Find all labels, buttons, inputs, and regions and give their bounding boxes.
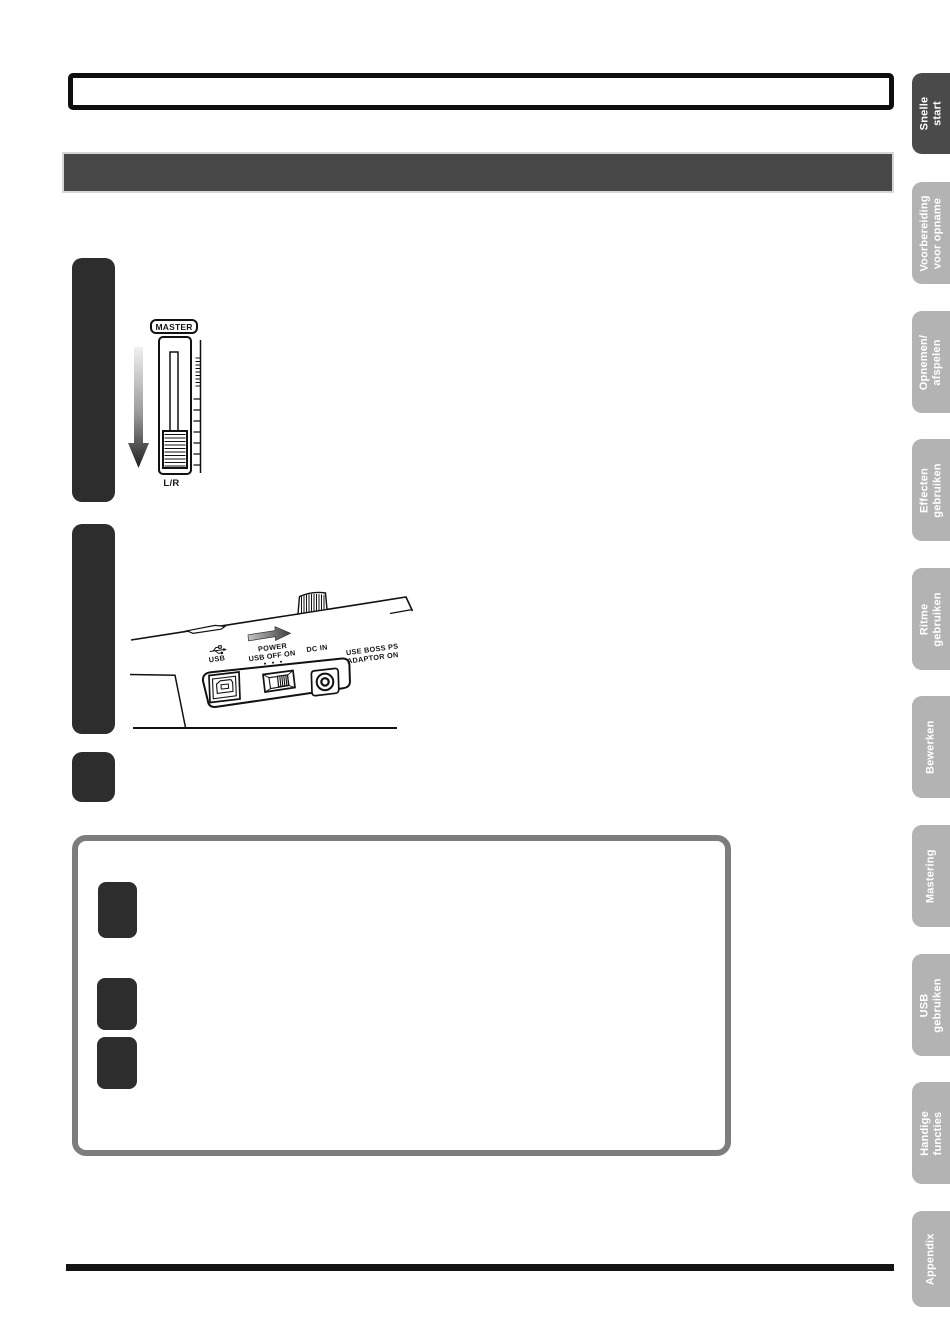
usb-label: USB — [208, 653, 226, 664]
down-arrow-icon — [128, 347, 149, 468]
tab-label: Bewerken — [925, 720, 938, 774]
sidebar-tab-appendix[interactable]: Appendix — [912, 1211, 950, 1307]
sidebar-tab-usb[interactable]: USB gebruiken — [912, 954, 950, 1056]
note-step-block-1 — [98, 882, 137, 938]
master-fader-illustration: MASTER L/R — [125, 315, 215, 495]
note-step-block-2 — [97, 978, 137, 1030]
step-block-3 — [72, 752, 115, 802]
manual-page: MASTER L/R — [0, 0, 950, 1342]
device-left-edge — [130, 675, 186, 728]
sidebar-tab-opnemen[interactable]: Opnemen/ afspelen — [912, 311, 950, 413]
device-right-edge — [390, 610, 413, 614]
sidebar-tab-mastering[interactable]: Mastering — [912, 825, 950, 927]
note-step-block-3 — [97, 1037, 137, 1089]
strap-latch — [187, 625, 225, 633]
sidebar-tab-voorbereiding[interactable]: Voorbereiding voor opname — [912, 182, 950, 284]
sidebar-tab-snelle-start[interactable]: Snelle start — [912, 73, 950, 154]
dc-in-label: DC IN — [306, 642, 328, 654]
tab-label: USB gebruiken — [919, 978, 944, 1032]
tab-label: Opnemen/ afspelen — [919, 334, 944, 389]
note-box — [72, 835, 731, 1156]
master-label: MASTER — [155, 322, 192, 332]
power-switch[interactable] — [263, 671, 295, 693]
title-box — [68, 73, 894, 110]
step-block-2 — [72, 524, 115, 734]
step-block-1 — [72, 258, 115, 502]
rotary-knob[interactable] — [298, 592, 327, 614]
dc-in-jack[interactable] — [311, 668, 338, 695]
fader-scale-ticks-sparse — [194, 399, 201, 465]
tab-label: Handige functies — [919, 1111, 944, 1156]
tab-label: Voorbereiding voor opname — [919, 195, 944, 271]
usb-port[interactable] — [209, 672, 240, 703]
lr-label: L/R — [163, 478, 179, 489]
sidebar-tab-bewerken[interactable]: Bewerken — [912, 696, 950, 798]
switch-position-dots — [264, 661, 282, 665]
sidebar-tab-effecten[interactable]: Effecten gebruiken — [912, 439, 950, 541]
tab-label: Ritme gebruiken — [919, 592, 944, 646]
sidebar-tab-ritme[interactable]: Ritme gebruiken — [912, 568, 950, 670]
sidebar-tab-handige[interactable]: Handige functies — [912, 1082, 950, 1184]
fader-stem — [170, 352, 178, 432]
footer-rule — [66, 1264, 894, 1271]
switch-scale-label: USB OFF ON — [248, 648, 296, 663]
rear-panel-illustration: USB POWER USB OFF ON DC IN USE BOSS PS A… — [125, 578, 417, 740]
tab-label: Mastering — [925, 849, 938, 903]
tab-label: Effecten gebruiken — [919, 463, 944, 517]
section-header-bar — [62, 152, 894, 193]
tab-label: Snelle start — [919, 95, 944, 133]
slide-arrow-icon — [248, 627, 291, 641]
tab-label: Appendix — [925, 1233, 938, 1285]
